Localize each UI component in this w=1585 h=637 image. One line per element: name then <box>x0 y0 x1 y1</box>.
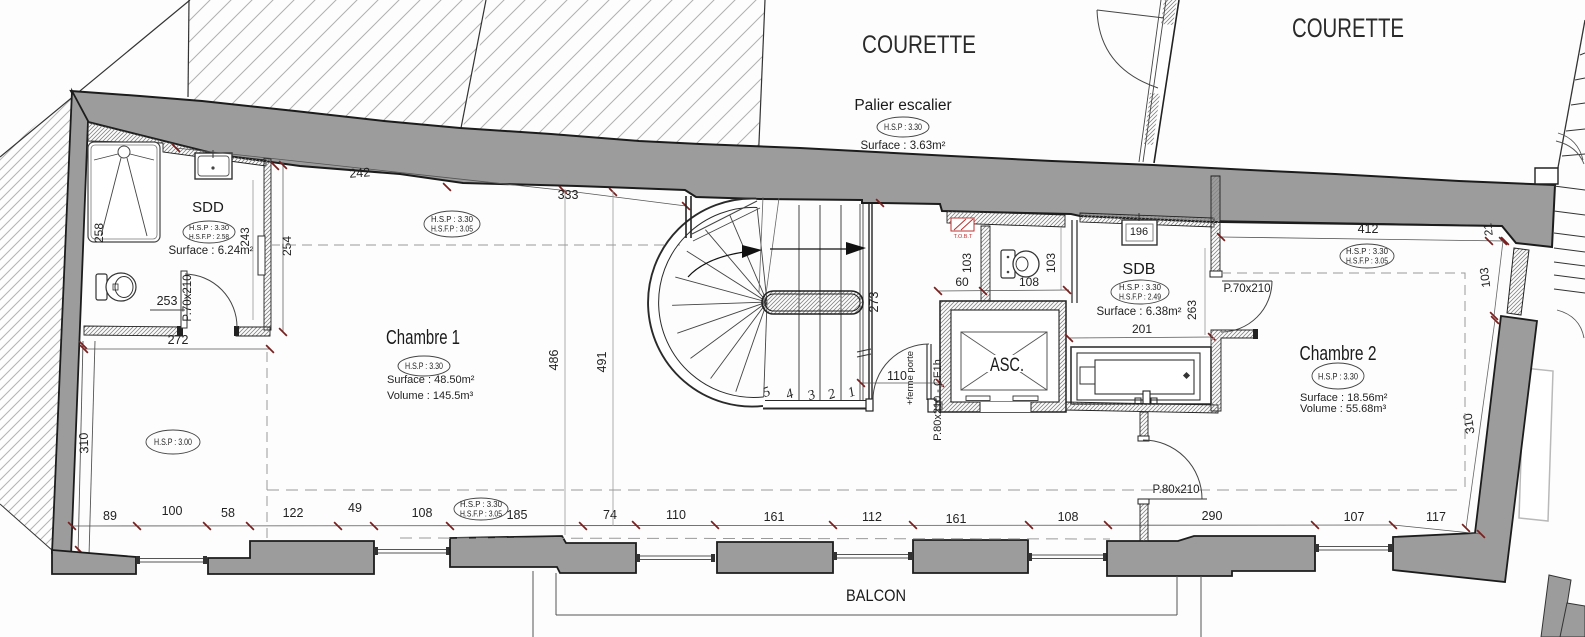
svg-text:H.S.F.P : 3.05: H.S.F.P : 3.05 <box>1346 257 1388 266</box>
svg-text:112: 112 <box>862 510 882 524</box>
svg-text:P.70x210: P.70x210 <box>182 274 194 321</box>
svg-text:110: 110 <box>666 508 686 522</box>
svg-text:58: 58 <box>221 506 235 520</box>
svg-text:Surface : 6.38m²: Surface : 6.38m² <box>1096 306 1181 318</box>
svg-text:BALCON: BALCON <box>846 587 906 605</box>
svg-text:SDD: SDD <box>192 199 224 216</box>
svg-text:H.S.P : 3.30: H.S.P : 3.30 <box>189 223 229 232</box>
svg-text:108: 108 <box>1019 275 1039 289</box>
svg-text:103: 103 <box>1044 253 1058 273</box>
svg-text:242: 242 <box>349 165 371 180</box>
svg-text:21: 21 <box>1482 222 1495 236</box>
svg-text:103: 103 <box>1477 266 1493 288</box>
svg-text:110: 110 <box>887 369 907 383</box>
svg-text:122: 122 <box>283 506 304 520</box>
svg-text:74: 74 <box>603 508 617 522</box>
svg-text:H.S.P : 3.30: H.S.P : 3.30 <box>460 500 503 509</box>
svg-text:290: 290 <box>1202 509 1223 523</box>
svg-text:161: 161 <box>764 510 785 524</box>
svg-text:Surface : 3.63m²: Surface : 3.63m² <box>860 140 945 152</box>
svg-text:258: 258 <box>92 223 106 243</box>
svg-text:P.80x210: P.80x210 <box>1152 484 1199 496</box>
svg-text:Palier escalier: Palier escalier <box>854 97 951 114</box>
svg-text:H.S.F.P : 3.05: H.S.F.P : 3.05 <box>431 225 473 234</box>
svg-text:100: 100 <box>162 504 183 518</box>
svg-text:Surface : 48.50m²: Surface : 48.50m² <box>387 374 475 386</box>
svg-text:272: 272 <box>168 333 189 347</box>
svg-text:243: 243 <box>240 227 252 246</box>
svg-text:49: 49 <box>348 501 362 515</box>
svg-text:COURETTE: COURETTE <box>1292 13 1404 43</box>
svg-text:Volume : 55.68m³: Volume : 55.68m³ <box>1300 403 1387 415</box>
svg-text:185: 185 <box>507 508 528 522</box>
svg-text:263: 263 <box>1185 300 1199 320</box>
svg-text:253: 253 <box>157 294 178 308</box>
svg-text:H.S.P : 3.00: H.S.P : 3.00 <box>154 437 192 447</box>
svg-text:89: 89 <box>103 509 117 523</box>
svg-text:COURETTE: COURETTE <box>862 31 976 59</box>
svg-text:H.S.F.P : 2.58: H.S.F.P : 2.58 <box>189 232 229 241</box>
svg-text:Chambre 1: Chambre 1 <box>386 327 460 349</box>
svg-text:H.S.F.P : 3.05: H.S.F.P : 3.05 <box>460 510 502 519</box>
svg-text:Volume : 145.5m³: Volume : 145.5m³ <box>387 390 474 402</box>
svg-text:103: 103 <box>960 253 974 273</box>
svg-text:H.S.P : 3.30: H.S.P : 3.30 <box>1119 283 1162 292</box>
svg-text:310: 310 <box>1461 412 1478 435</box>
svg-text:201: 201 <box>1132 322 1152 336</box>
svg-text:412: 412 <box>1358 222 1379 236</box>
svg-text:108: 108 <box>412 506 433 520</box>
svg-text:108: 108 <box>1058 510 1079 524</box>
svg-text:T.O.B.T: T.O.B.T <box>954 234 973 240</box>
svg-text:ASC.: ASC. <box>990 355 1024 376</box>
svg-text:107: 107 <box>1344 510 1365 524</box>
svg-text:H.S.F.P : 2.49: H.S.F.P : 2.49 <box>1119 293 1161 302</box>
svg-text:161: 161 <box>946 512 967 526</box>
svg-text:P.70x210: P.70x210 <box>1223 283 1270 295</box>
svg-text:486: 486 <box>547 350 561 371</box>
svg-text:333: 333 <box>558 188 579 202</box>
svg-text:117: 117 <box>1426 510 1446 524</box>
svg-text:H.S.P : 3.30: H.S.P : 3.30 <box>1346 247 1389 256</box>
svg-text:273: 273 <box>867 292 881 313</box>
svg-text:H.S.P : 3.30: H.S.P : 3.30 <box>884 122 922 132</box>
svg-text:254: 254 <box>280 236 294 256</box>
svg-text:310: 310 <box>77 432 92 453</box>
svg-text:H.S.P : 3.30: H.S.P : 3.30 <box>405 361 443 371</box>
svg-text:H.S.P : 3.30: H.S.P : 3.30 <box>431 215 474 224</box>
svg-text:+ferme porte: +ferme porte <box>905 351 916 405</box>
svg-text:H.S.P : 3.30: H.S.P : 3.30 <box>1318 371 1358 382</box>
svg-text:Chambre 2: Chambre 2 <box>1300 343 1377 365</box>
svg-text:SDB: SDB <box>1123 261 1156 278</box>
svg-text:60: 60 <box>955 275 969 289</box>
svg-text:491: 491 <box>595 352 609 373</box>
svg-text:196: 196 <box>1130 226 1148 238</box>
